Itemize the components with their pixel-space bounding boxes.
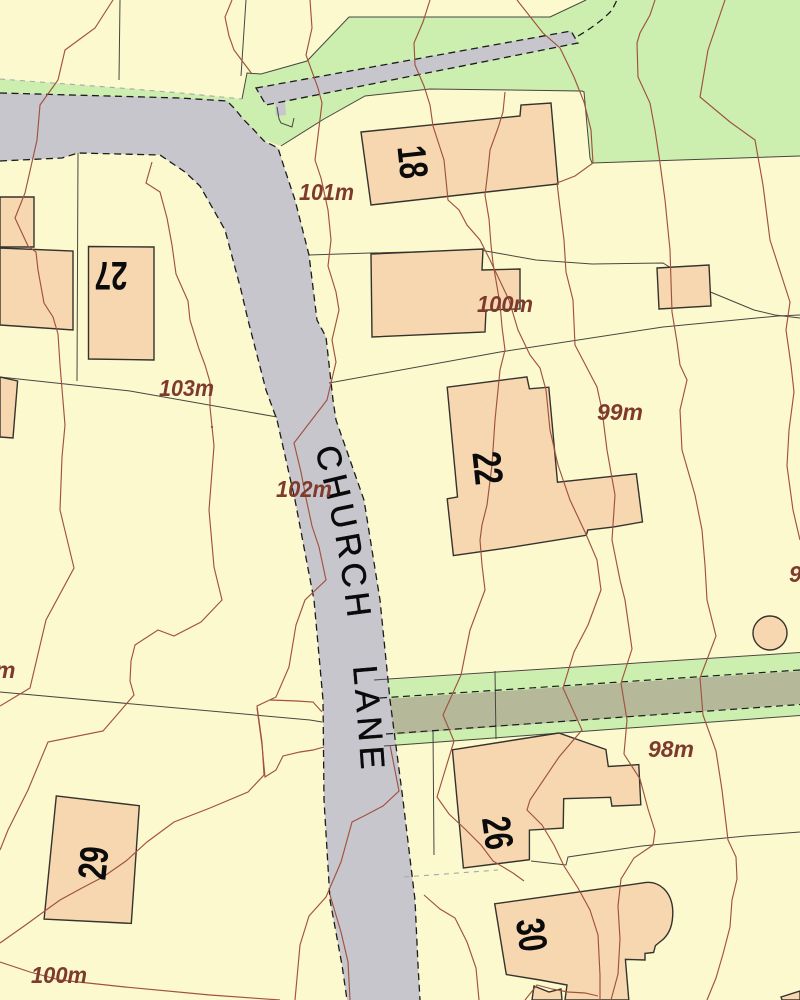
svg-text:99m: 99m [597,399,643,425]
svg-text:103m: 103m [159,375,214,401]
svg-text:m: m [0,657,15,683]
svg-text:27: 27 [95,253,128,297]
svg-text:30: 30 [507,916,555,955]
svg-text:101m: 101m [299,179,354,205]
svg-text:97m: 97m [789,561,800,587]
svg-text:100m: 100m [31,962,87,988]
svg-text:22: 22 [463,449,510,486]
svg-text:102m: 102m [276,476,332,502]
svg-text:98m: 98m [648,736,694,762]
svg-text:18: 18 [388,143,435,180]
svg-text:26: 26 [473,814,521,853]
svg-text:100m: 100m [477,291,533,317]
svg-text:29: 29 [70,844,117,881]
